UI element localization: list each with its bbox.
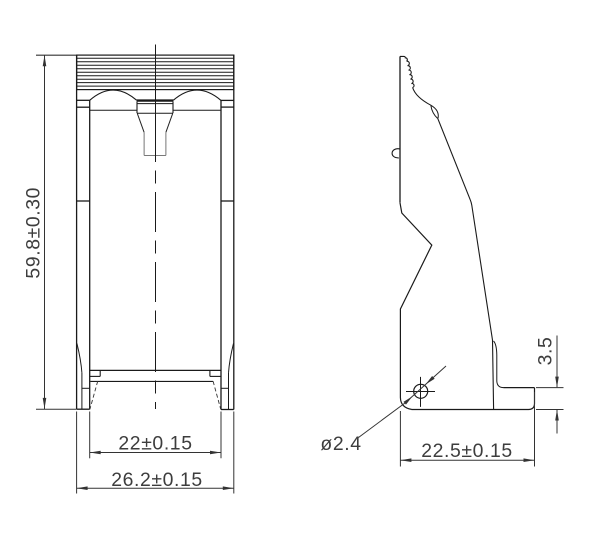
svg-text:22.5±0.15: 22.5±0.15: [421, 440, 513, 462]
svg-text:ø2.4: ø2.4: [320, 433, 361, 455]
svg-text:22±0.15: 22±0.15: [118, 432, 192, 454]
svg-text:59.8±0.30: 59.8±0.30: [23, 187, 45, 279]
svg-text:3.5: 3.5: [535, 337, 557, 366]
svg-text:26.2±0.15: 26.2±0.15: [111, 469, 203, 491]
